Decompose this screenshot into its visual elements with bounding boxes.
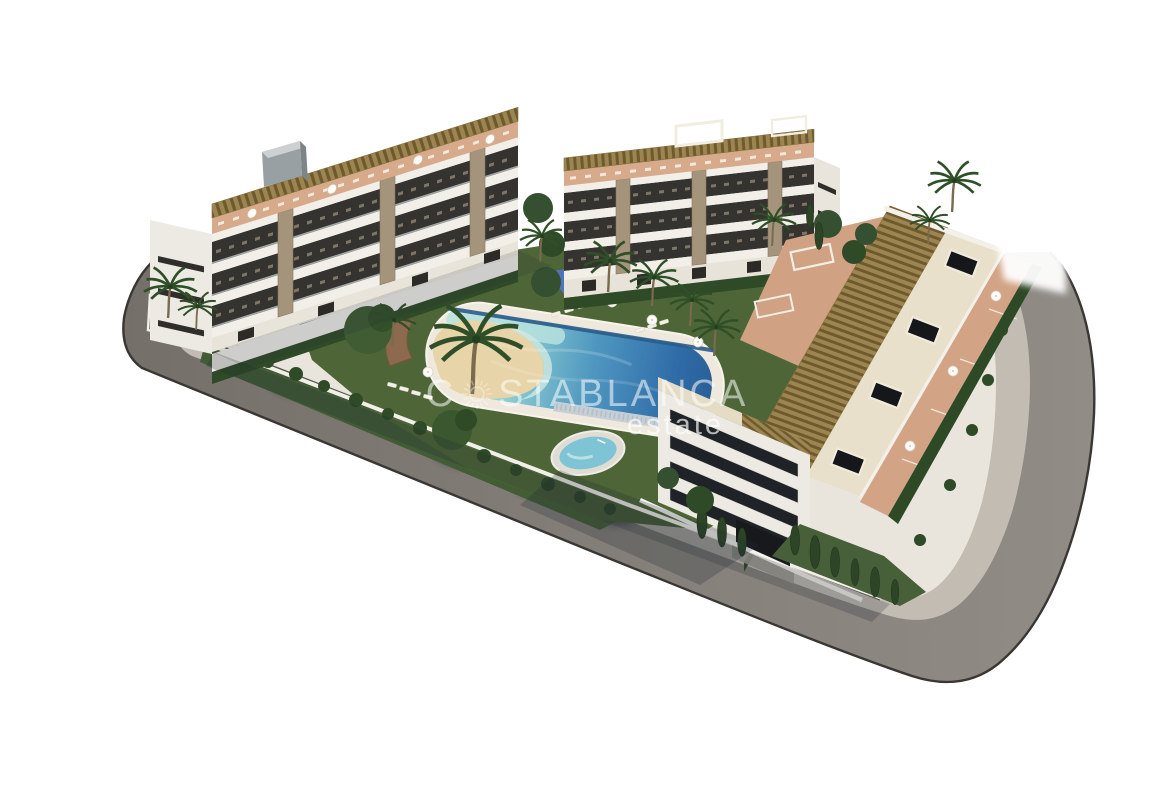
roof-portal-frame xyxy=(772,116,806,136)
complex-render xyxy=(0,0,1165,800)
render-canvas: C STABLANCA estate xyxy=(0,0,1165,800)
stone-pillar xyxy=(692,170,706,266)
stone-pillar xyxy=(380,176,395,285)
roof-portal-frame xyxy=(676,121,722,146)
stone-pillar xyxy=(278,208,293,317)
stone-pillar xyxy=(470,148,485,257)
